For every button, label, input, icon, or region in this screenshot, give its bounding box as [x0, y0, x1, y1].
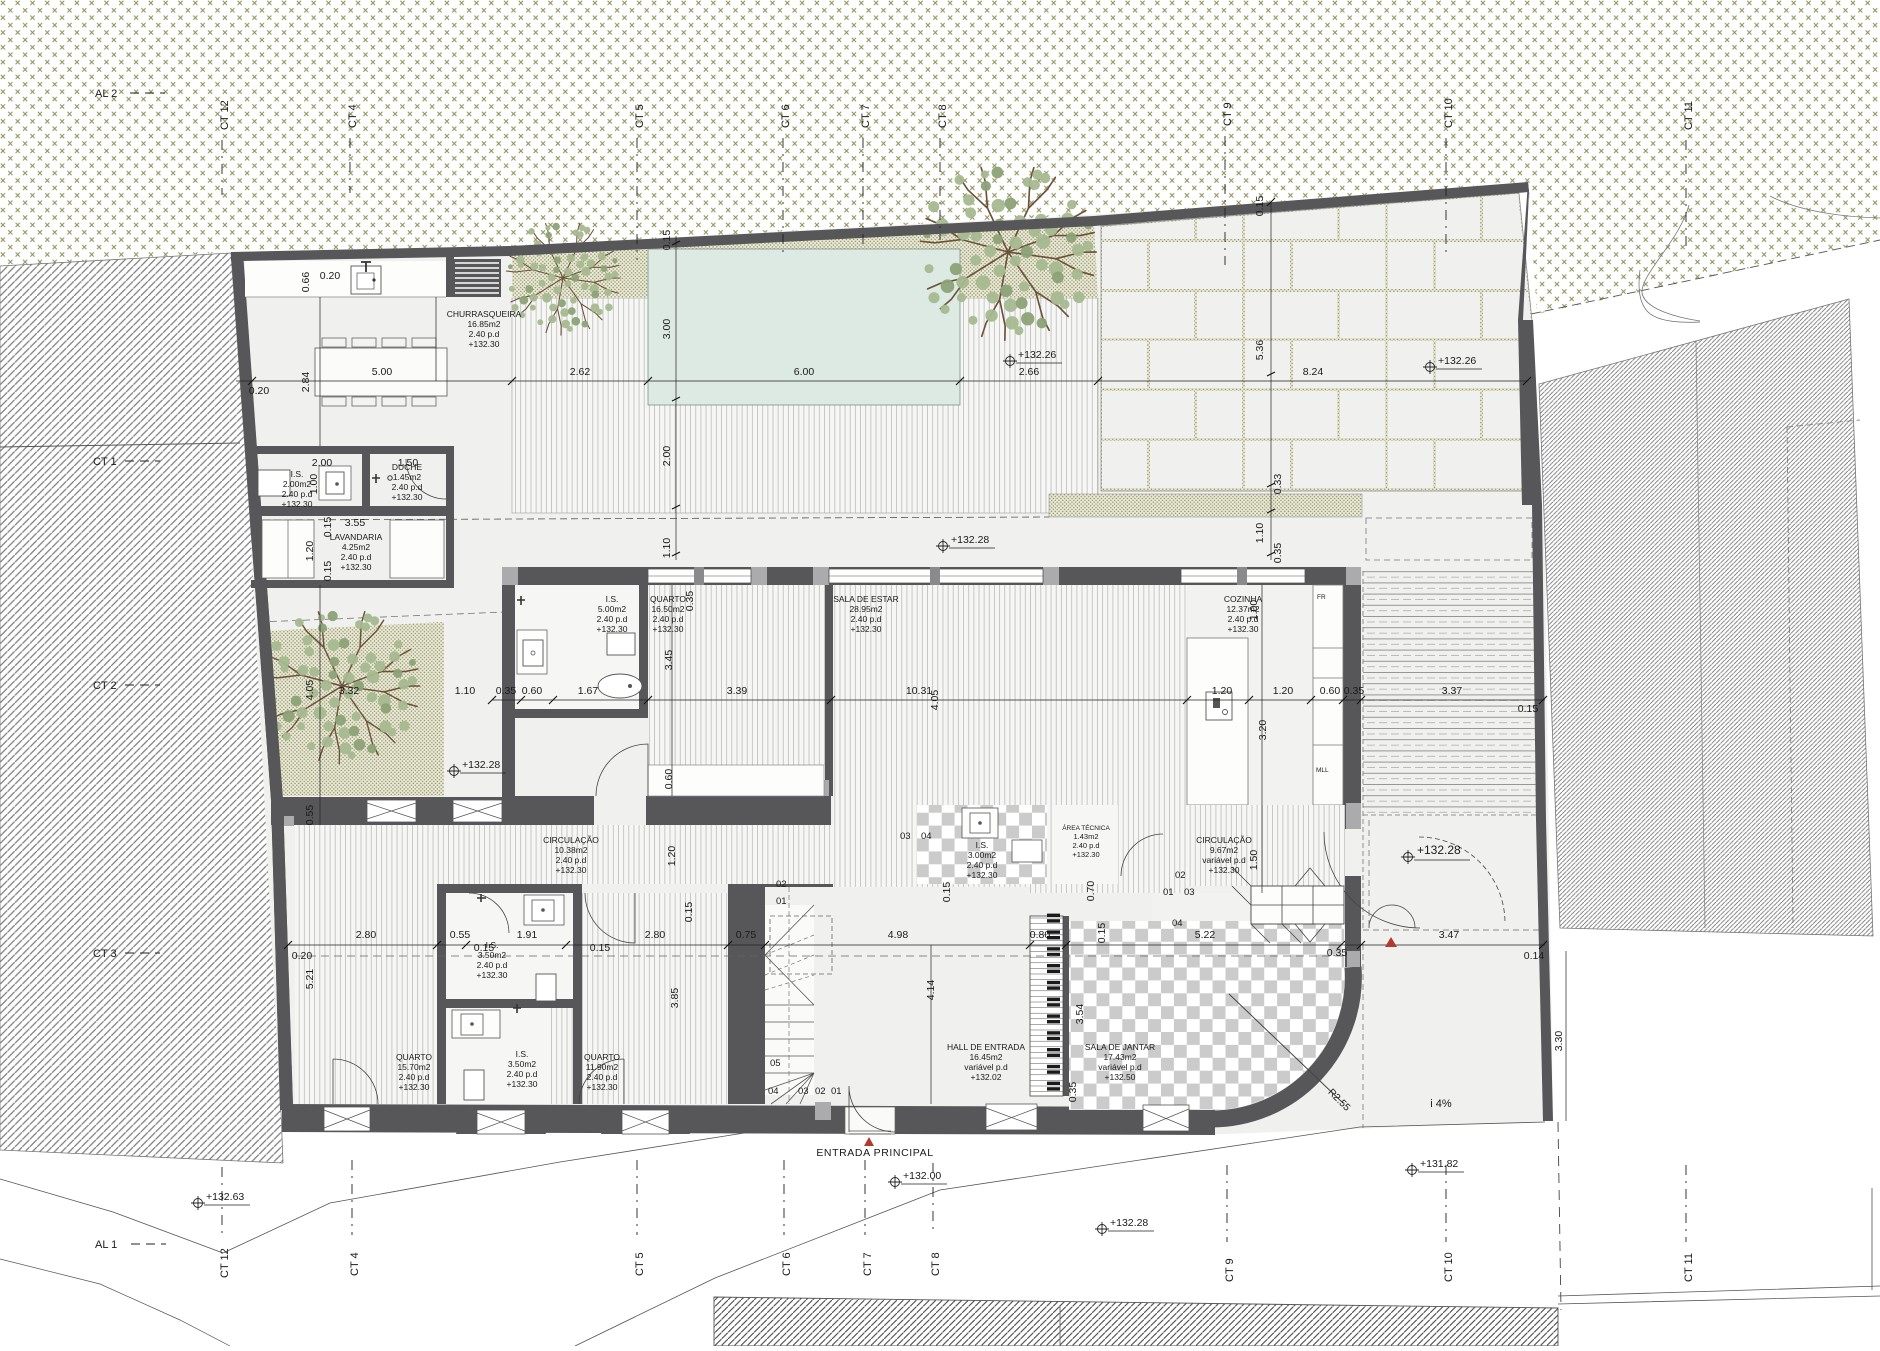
svg-text:02: 02 — [1175, 870, 1186, 881]
svg-text:+132.50: +132.50 — [1105, 1072, 1136, 1082]
svg-text:+132.30: +132.30 — [597, 624, 628, 634]
svg-text:CT 8: CT 8 — [930, 1252, 942, 1276]
svg-text:CT 7: CT 7 — [862, 1252, 874, 1276]
svg-text:1.45m2: 1.45m2 — [393, 472, 422, 482]
svg-text:0.80: 0.80 — [1030, 929, 1051, 941]
svg-text:I.S.: I.S. — [606, 594, 619, 604]
svg-text:CIRCULAÇÃO: CIRCULAÇÃO — [1196, 835, 1252, 845]
svg-text:0.35: 0.35 — [1067, 1082, 1079, 1103]
svg-text:04: 04 — [921, 831, 932, 842]
svg-text:CT 5: CT 5 — [634, 104, 646, 128]
svg-text:5.21: 5.21 — [304, 969, 316, 990]
svg-text:+132.30: +132.30 — [1228, 624, 1259, 634]
svg-text:03: 03 — [798, 1086, 809, 1097]
svg-text:variável p.d: variável p.d — [1202, 855, 1246, 865]
svg-text:2.66: 2.66 — [1019, 366, 1040, 378]
svg-text:0.15: 0.15 — [1254, 196, 1266, 217]
svg-text:1.20: 1.20 — [1273, 685, 1294, 697]
svg-text:0.60: 0.60 — [1320, 685, 1341, 697]
svg-text:0.20: 0.20 — [320, 270, 341, 282]
svg-text:2.40 p.d: 2.40 p.d — [597, 614, 628, 624]
svg-text:0.20: 0.20 — [249, 385, 270, 397]
svg-text:+132.30: +132.30 — [399, 1082, 430, 1092]
svg-text:01: 01 — [1163, 887, 1174, 898]
svg-text:2.40 p.d: 2.40 p.d — [507, 1069, 538, 1079]
svg-text:CT 9: CT 9 — [1224, 1258, 1236, 1282]
svg-text:28.95m2: 28.95m2 — [849, 604, 882, 614]
svg-text:CT 5: CT 5 — [634, 1252, 646, 1276]
svg-text:2.40 p.d: 2.40 p.d — [282, 489, 313, 499]
svg-text:0.75: 0.75 — [736, 929, 757, 941]
svg-text:2.40 p.d: 2.40 p.d — [1072, 841, 1099, 850]
svg-text:4.05: 4.05 — [929, 690, 941, 711]
svg-text:1.20: 1.20 — [1212, 685, 1233, 697]
svg-text:+132.28: +132.28 — [1110, 1217, 1148, 1229]
svg-text:3.50m2: 3.50m2 — [478, 950, 507, 960]
svg-text:4.14: 4.14 — [925, 980, 937, 1001]
svg-text:CT 10: CT 10 — [1443, 98, 1455, 128]
svg-text:CT 9: CT 9 — [1222, 102, 1234, 126]
svg-text:+132.02: +132.02 — [971, 1072, 1002, 1082]
svg-text:CT 1: CT 1 — [93, 456, 117, 468]
svg-text:0.60: 0.60 — [663, 769, 675, 790]
svg-text:COZINHA: COZINHA — [1224, 594, 1263, 604]
svg-text:CHURRASQUEIRA: CHURRASQUEIRA — [447, 309, 522, 319]
svg-text:2.84: 2.84 — [300, 372, 312, 393]
svg-text:CIRCULAÇÃO: CIRCULAÇÃO — [543, 835, 599, 845]
svg-text:2.40 p.d: 2.40 p.d — [341, 552, 372, 562]
svg-text:+131.82: +131.82 — [1420, 1158, 1458, 1170]
svg-text:+132.30: +132.30 — [341, 562, 372, 572]
svg-text:0.66: 0.66 — [300, 272, 312, 293]
svg-text:0.15: 0.15 — [941, 882, 953, 903]
svg-text:1.10: 1.10 — [455, 685, 476, 697]
svg-text:2.00m2: 2.00m2 — [283, 479, 312, 489]
svg-text:CT 6: CT 6 — [781, 1252, 793, 1276]
svg-text:11.90m2: 11.90m2 — [586, 1062, 619, 1072]
svg-text:03: 03 — [1184, 887, 1195, 898]
svg-text:1.43m2: 1.43m2 — [1073, 832, 1098, 841]
svg-text:0.35: 0.35 — [1327, 947, 1348, 959]
svg-text:CT 12: CT 12 — [219, 100, 231, 130]
svg-text:2.40 p.d: 2.40 p.d — [587, 1072, 618, 1082]
svg-text:3.85: 3.85 — [669, 988, 681, 1009]
svg-text:2.40 p.d: 2.40 p.d — [399, 1072, 430, 1082]
svg-text:1.20: 1.20 — [666, 846, 678, 867]
svg-text:+132.30: +132.30 — [392, 492, 423, 502]
svg-text:QUARTO: QUARTO — [584, 1052, 620, 1062]
svg-text:0.15: 0.15 — [683, 902, 695, 923]
svg-text:3.54: 3.54 — [1074, 1004, 1086, 1025]
svg-text:2.40 p.d: 2.40 p.d — [469, 329, 500, 339]
svg-text:ÁREA TÉCNICA: ÁREA TÉCNICA — [1062, 823, 1110, 832]
svg-text:0.14: 0.14 — [1524, 950, 1545, 962]
svg-text:1.20: 1.20 — [304, 541, 316, 562]
svg-text:2.40 p.d: 2.40 p.d — [556, 855, 587, 865]
svg-text:0.15: 0.15 — [1518, 703, 1539, 715]
svg-text:4.98: 4.98 — [888, 929, 909, 941]
svg-text:0.20: 0.20 — [292, 950, 313, 962]
svg-text:3.00m2: 3.00m2 — [968, 850, 997, 860]
svg-text:I.S.: I.S. — [976, 840, 989, 850]
svg-text:0.35: 0.35 — [496, 685, 517, 697]
svg-text:+132.30: +132.30 — [851, 624, 882, 634]
svg-text:1.50: 1.50 — [1248, 850, 1260, 871]
svg-text:2.62: 2.62 — [570, 366, 591, 378]
svg-text:+132.30: +132.30 — [1072, 850, 1099, 859]
svg-text:9.67m2: 9.67m2 — [1210, 845, 1239, 855]
svg-text:+132.28: +132.28 — [1417, 843, 1461, 857]
svg-text:2.80: 2.80 — [356, 929, 377, 941]
svg-text:5.22: 5.22 — [1195, 929, 1216, 941]
svg-text:+132.28: +132.28 — [951, 534, 989, 546]
svg-text:CT 2: CT 2 — [93, 680, 117, 692]
svg-text:0.15: 0.15 — [661, 230, 673, 251]
svg-text:3.00: 3.00 — [661, 319, 673, 340]
svg-text:0.35: 0.35 — [1272, 543, 1284, 564]
svg-text:10.38m2: 10.38m2 — [554, 845, 587, 855]
svg-text:+132.30: +132.30 — [507, 1079, 538, 1089]
svg-text:QUARTO: QUARTO — [650, 594, 686, 604]
svg-text:04: 04 — [768, 1086, 779, 1097]
svg-text:2.40 p.d: 2.40 p.d — [851, 614, 882, 624]
svg-text:0.55: 0.55 — [450, 929, 471, 941]
svg-text:FR: FR — [1317, 594, 1326, 601]
svg-text:0.15: 0.15 — [590, 942, 611, 954]
svg-text:3.37: 3.37 — [1442, 685, 1463, 697]
svg-text:5.00: 5.00 — [372, 366, 393, 378]
svg-text:AL 1: AL 1 — [95, 1239, 117, 1251]
svg-text:+132.30: +132.30 — [469, 339, 500, 349]
svg-text:2.40 p.d: 2.40 p.d — [653, 614, 684, 624]
svg-text:0.55: 0.55 — [304, 805, 316, 826]
svg-text:3.20: 3.20 — [1257, 720, 1269, 741]
svg-text:CT 12: CT 12 — [219, 1248, 231, 1278]
svg-text:+132.26: +132.26 — [1438, 355, 1476, 367]
svg-text:CT 11: CT 11 — [1683, 1253, 1695, 1282]
svg-text:05: 05 — [770, 1058, 781, 1069]
svg-text:CT 3: CT 3 — [93, 948, 117, 960]
svg-text:0.33: 0.33 — [1272, 474, 1284, 495]
svg-text:variável p.d: variável p.d — [964, 1062, 1008, 1072]
svg-text:1.91: 1.91 — [517, 929, 538, 941]
svg-text:16.45m2: 16.45m2 — [969, 1052, 1002, 1062]
svg-text:SALA DE ESTAR: SALA DE ESTAR — [833, 594, 899, 604]
svg-text:I.S.: I.S. — [486, 940, 499, 950]
svg-text:2.40 p.d: 2.40 p.d — [967, 860, 998, 870]
svg-text:+132.30: +132.30 — [1209, 865, 1240, 875]
svg-text:CT 4: CT 4 — [347, 104, 359, 128]
svg-text:QUARTO: QUARTO — [396, 1052, 432, 1062]
svg-text:01: 01 — [831, 1086, 842, 1097]
svg-text:+132.30: +132.30 — [477, 970, 508, 980]
svg-text:2.40 p.d: 2.40 p.d — [477, 960, 508, 970]
svg-text:4.25m2: 4.25m2 — [342, 542, 371, 552]
svg-text:+132.30: +132.30 — [587, 1082, 618, 1092]
svg-text:17.43m2: 17.43m2 — [1103, 1052, 1136, 1062]
svg-text:+132.28: +132.28 — [462, 759, 500, 771]
svg-text:04: 04 — [1172, 918, 1183, 929]
svg-text:2.40 p.d: 2.40 p.d — [392, 482, 423, 492]
svg-text:+132.00: +132.00 — [903, 1170, 941, 1182]
svg-text:+132.30: +132.30 — [653, 624, 684, 634]
svg-text:3.30: 3.30 — [1553, 1031, 1565, 1052]
svg-text:HALL DE ENTRADA: HALL DE ENTRADA — [947, 1042, 1025, 1052]
svg-text:CT 6: CT 6 — [780, 104, 792, 128]
svg-text:variável p.d: variável p.d — [1098, 1062, 1142, 1072]
svg-text:0.70: 0.70 — [1085, 881, 1097, 902]
svg-text:+132.30: +132.30 — [282, 499, 313, 509]
svg-text:DUCHE: DUCHE — [392, 462, 423, 472]
svg-text:2.80: 2.80 — [645, 929, 666, 941]
svg-text:5.36: 5.36 — [1254, 340, 1266, 361]
svg-text:3.50m2: 3.50m2 — [508, 1059, 537, 1069]
svg-text:01: 01 — [776, 896, 787, 907]
svg-text:03: 03 — [900, 831, 911, 842]
svg-text:12.37m2: 12.37m2 — [1226, 604, 1259, 614]
svg-text:8.24: 8.24 — [1303, 366, 1324, 378]
svg-text:+132.30: +132.30 — [967, 870, 998, 880]
svg-text:4.05: 4.05 — [304, 680, 316, 701]
svg-text:+132.30: +132.30 — [556, 865, 587, 875]
svg-text:CT 4: CT 4 — [349, 1252, 361, 1276]
svg-text:SALA DE JANTAR: SALA DE JANTAR — [1085, 1042, 1155, 1052]
svg-text:I.S.: I.S. — [291, 469, 304, 479]
svg-text:02: 02 — [815, 1086, 826, 1097]
svg-text:i 4%: i 4% — [1430, 1098, 1452, 1110]
svg-text:ENTRADA PRINCIPAL: ENTRADA PRINCIPAL — [816, 1147, 933, 1159]
svg-text:+132.26: +132.26 — [1018, 349, 1056, 361]
svg-text:0.15: 0.15 — [322, 561, 334, 582]
svg-text:MLL: MLL — [1316, 767, 1329, 774]
svg-text:CT 10: CT 10 — [1443, 1252, 1455, 1282]
svg-text:LAVANDARIA: LAVANDARIA — [330, 532, 383, 542]
svg-text:3.39: 3.39 — [727, 685, 748, 697]
svg-text:2.40 p.d: 2.40 p.d — [1228, 614, 1259, 624]
svg-text:3.32: 3.32 — [339, 685, 360, 697]
svg-text:1.67: 1.67 — [578, 685, 599, 697]
svg-text:0.60: 0.60 — [522, 685, 543, 697]
svg-text:I.S.: I.S. — [516, 1049, 529, 1059]
svg-text:+132.63: +132.63 — [206, 1191, 244, 1203]
svg-text:CT 8: CT 8 — [937, 104, 949, 128]
svg-text:CT 11: CT 11 — [1683, 101, 1695, 130]
svg-text:AL 2: AL 2 — [95, 88, 117, 100]
svg-text:1.10: 1.10 — [1254, 523, 1266, 544]
svg-text:2.00: 2.00 — [312, 457, 333, 469]
svg-text:0.35: 0.35 — [1344, 685, 1365, 697]
svg-text:CT 7: CT 7 — [860, 104, 872, 128]
svg-text:3.55: 3.55 — [345, 517, 366, 529]
svg-text:02: 02 — [776, 879, 787, 890]
svg-text:16.50m2: 16.50m2 — [651, 604, 684, 614]
svg-text:2.00: 2.00 — [661, 446, 673, 467]
svg-text:0.15: 0.15 — [1096, 923, 1108, 944]
svg-text:6.00: 6.00 — [794, 366, 815, 378]
svg-text:3.47: 3.47 — [1439, 929, 1460, 941]
svg-text:5.00m2: 5.00m2 — [598, 604, 627, 614]
svg-text:3.45: 3.45 — [663, 650, 675, 671]
svg-text:16.85m2: 16.85m2 — [467, 319, 500, 329]
svg-text:15.70m2: 15.70m2 — [397, 1062, 430, 1072]
svg-text:1.10: 1.10 — [661, 538, 673, 559]
